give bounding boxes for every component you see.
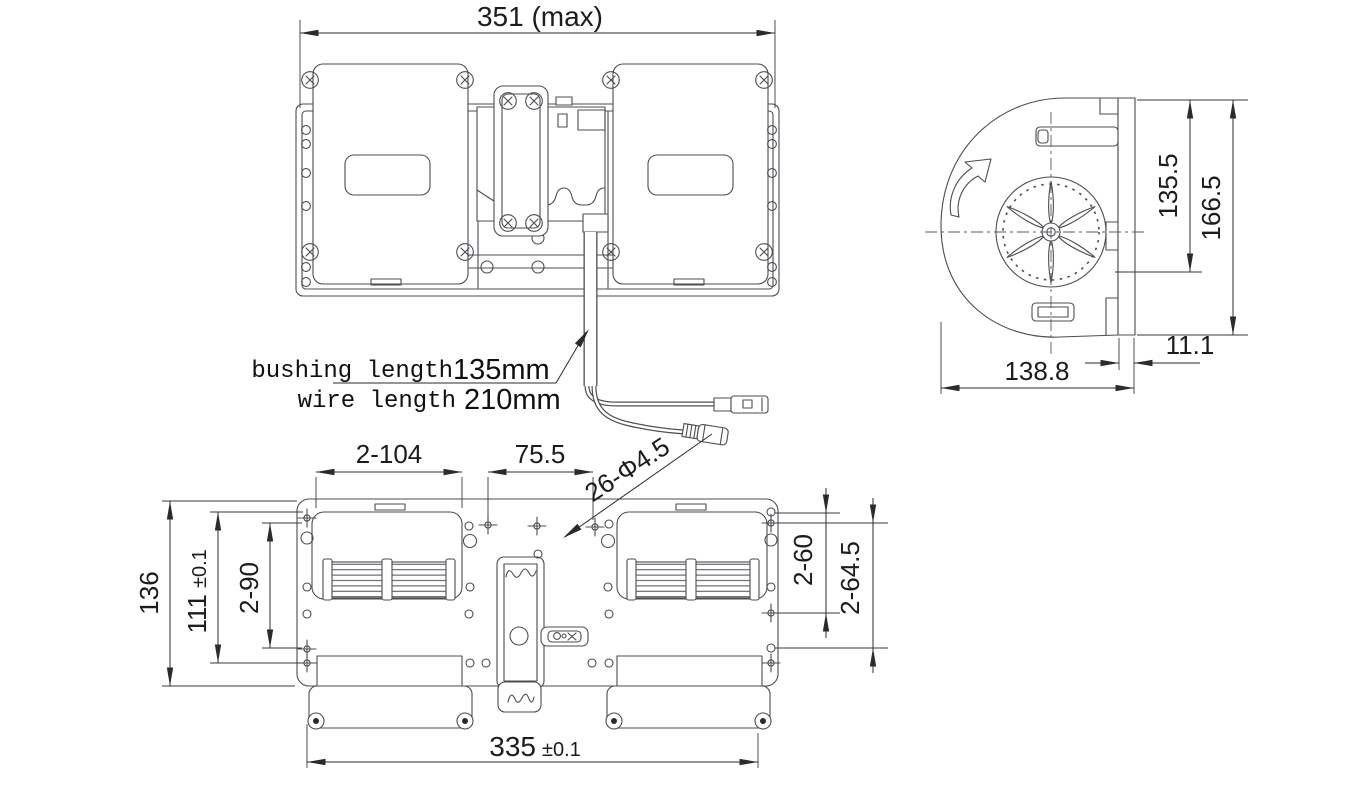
dim-text-166-5: 166.5 — [1196, 175, 1226, 240]
dim-text-75-5: 75.5 — [515, 439, 566, 469]
dim-text-351-max: 351 (max) — [477, 1, 603, 32]
channel-connector-tab — [541, 627, 588, 646]
bushing-length-value: 135mm — [453, 354, 550, 386]
bullet-terminal — [682, 422, 729, 446]
dim-136: 136 — [134, 501, 297, 686]
dim-text-335-tol: ±0.1 — [542, 739, 581, 761]
technical-drawing-canvas: 351 (max) bushing length 135mm wire leng… — [0, 0, 1351, 806]
bottom-view — [297, 499, 780, 729]
dim-side-11-1: 11.1 — [1085, 330, 1214, 394]
dim-text-2-90: 2-90 — [234, 562, 264, 614]
blower-assembly-drawing: 351 (max) bushing length 135mm wire leng… — [0, 0, 1351, 806]
dim-text-111-tol: ±0.1 — [189, 549, 211, 588]
dim-text-136: 136 — [134, 571, 164, 614]
dim-2-104: 2-104 — [316, 439, 462, 508]
lead-wire-note: bushing length 135mm wire length 210mm — [251, 329, 589, 416]
dim-text-11-1: 11.1 — [1166, 330, 1215, 360]
center-bracket — [494, 86, 548, 236]
dim-text-111: 111 — [182, 594, 212, 634]
dim-2-90: 2-90 — [234, 523, 302, 648]
side-view — [925, 98, 1148, 355]
wire-length-label: wire length — [298, 388, 456, 415]
blower-box-left — [313, 64, 468, 285]
spade-terminal — [714, 396, 768, 413]
dim-text-2-104: 2-104 — [356, 439, 423, 469]
mounting-foot-right — [606, 686, 771, 729]
dim-text-335: 335 — [489, 731, 536, 762]
dim-text-138-8: 138.8 — [1004, 356, 1069, 386]
blower-box-right — [613, 64, 768, 285]
dim-text-2-64-5: 2-64.5 — [835, 541, 865, 615]
dim-2-60: 2-60 — [775, 488, 840, 638]
dim-text-135-5: 135.5 — [1153, 153, 1183, 218]
mounting-foot-left — [308, 686, 473, 729]
dim-335: 335 ±0.1 — [307, 724, 758, 768]
wire-length-value: 210mm — [464, 384, 561, 416]
dim-text-2-60: 2-60 — [788, 534, 818, 586]
bushing-length-label: bushing length — [251, 358, 453, 385]
